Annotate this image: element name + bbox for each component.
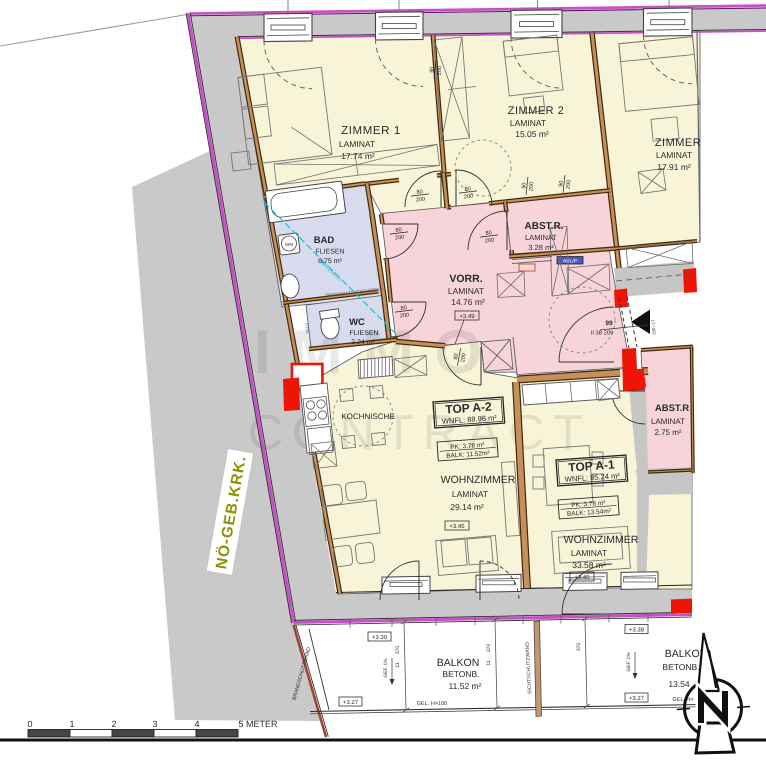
svg-text:II 38 209: II 38 209 (591, 330, 614, 337)
svg-text:LAMINAT: LAMINAT (525, 233, 557, 242)
svg-text:LAMINAT: LAMINAT (656, 150, 692, 160)
svg-text:BALKON: BALKON (437, 657, 480, 669)
svg-text:+3.38: +3.38 (629, 627, 645, 634)
svg-text:15.05 m²: 15.05 m² (515, 129, 549, 139)
svg-text:LAMINAT: LAMINAT (452, 489, 488, 499)
svg-text:4: 4 (194, 719, 199, 729)
svg-text:11: 11 (486, 660, 492, 665)
svg-text:ZIMMER 1: ZIMMER 1 (341, 125, 401, 137)
svg-text:2: 2 (111, 719, 116, 729)
svg-text:370: 370 (486, 644, 492, 653)
svg-text:BAD: BAD (314, 235, 335, 246)
svg-text:+3.45: +3.45 (574, 574, 590, 581)
svg-text:FLIESEN: FLIESEN (349, 330, 378, 337)
svg-text:14.76 m²: 14.76 m² (451, 297, 485, 307)
svg-text:370: 370 (395, 646, 401, 655)
svg-text:KOCHNISCHE: KOCHNISCHE (341, 412, 394, 421)
svg-text:GEF. 1%: GEF. 1% (383, 658, 389, 678)
svg-text:29.14 m²: 29.14 m² (450, 502, 484, 512)
svg-text:BETONB.: BETONB. (442, 669, 479, 679)
svg-text:99: 99 (605, 320, 613, 327)
svg-text:2.75 m²: 2.75 m² (654, 428, 681, 437)
svg-text:+3.27: +3.27 (343, 699, 359, 706)
svg-text:+3.49: +3.49 (459, 313, 475, 320)
svg-text:LAMINAT: LAMINAT (339, 139, 375, 149)
svg-text:CONTRACT: CONTRACT (248, 406, 592, 460)
svg-text:11.52 m²: 11.52 m² (449, 681, 482, 691)
svg-text:GEL. H=: GEL. H= (672, 697, 693, 703)
svg-text:ABST.R: ABST.R (655, 403, 689, 414)
svg-text:ZIMMER: ZIMMER (655, 137, 701, 149)
svg-text:0: 0 (27, 719, 32, 729)
svg-text:ABL/P: ABL/P (563, 259, 578, 265)
svg-text:6.75 m²: 6.75 m² (318, 258, 342, 265)
svg-text:370: 370 (576, 643, 582, 652)
svg-text:3: 3 (152, 719, 157, 729)
svg-text:33.58 m²: 33.58 m² (572, 560, 606, 570)
svg-text:200: 200 (395, 234, 405, 241)
svg-text:200: 200 (566, 180, 573, 190)
svg-text:200: 200 (400, 312, 410, 319)
svg-text:17.74 m²: 17.74 m² (341, 151, 375, 161)
svg-text:WC: WC (349, 317, 365, 328)
svg-text:ZIMMER 2: ZIMMER 2 (508, 105, 565, 117)
svg-text:200: 200 (464, 193, 474, 200)
svg-text:200: 200 (437, 66, 444, 76)
svg-text:VORR.: VORR. (449, 273, 482, 285)
svg-text:1: 1 (69, 719, 74, 729)
svg-text:5 METER: 5 METER (238, 719, 278, 729)
svg-text:17.91 m²: 17.91 m² (657, 162, 691, 172)
svg-text:LAMINAT: LAMINAT (448, 286, 484, 296)
svg-text:LAMINAT: LAMINAT (571, 548, 607, 558)
svg-text:+3.45: +3.45 (449, 523, 465, 530)
svg-text:3.28 m²: 3.28 m² (528, 243, 554, 252)
svg-text:+3.27: +3.27 (629, 695, 645, 702)
svg-text:200: 200 (416, 196, 426, 203)
svg-text:WOHNZIMMER: WOHNZIMMER (564, 534, 639, 546)
svg-text:+3.30: +3.30 (372, 634, 388, 641)
svg-text:11: 11 (395, 662, 401, 667)
svg-text:ABST.R.: ABST.R. (525, 221, 564, 232)
svg-text:FLIESEN: FLIESEN (315, 249, 344, 256)
svg-text:WM: WM (285, 242, 293, 247)
svg-text:200: 200 (529, 182, 536, 192)
svg-text:13.54: 13.54 (668, 679, 690, 689)
svg-text:200: 200 (485, 237, 495, 244)
svg-text:GEL. H=100: GEL. H=100 (417, 701, 447, 707)
svg-text:LAMINAT: LAMINAT (651, 417, 685, 426)
svg-text:WOHNZIMMER: WOHNZIMMER (441, 474, 516, 486)
svg-text:LAMINAT: LAMINAT (510, 118, 546, 128)
svg-text:BETONB.: BETONB. (662, 662, 699, 672)
svg-text:GEF. 1%: GEF. 1% (626, 652, 632, 672)
svg-text:2.24 m²: 2.24 m² (351, 339, 375, 346)
